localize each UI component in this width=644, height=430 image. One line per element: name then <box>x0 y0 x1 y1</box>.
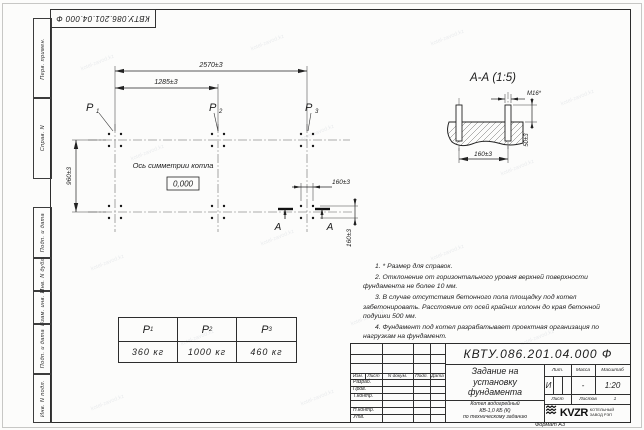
plan-axis-lines <box>88 124 352 232</box>
company-logo: KVZR КОТЕЛЬНЫЙ ЗАВОД РЭП <box>546 405 628 421</box>
note-4: 4. Фундамент под котел разрабатывает про… <box>363 323 615 342</box>
format-label: Формат А3 <box>490 422 610 428</box>
dim-bolt-height-label: 50±3 <box>524 133 530 147</box>
title-block-doc-number: КВТУ.086.201.04.000 Ф <box>446 344 630 364</box>
load-point-p2-label: P <box>209 102 217 114</box>
document-subtitle-line: Котел водогрейный <box>470 401 519 408</box>
p2-index: 2 <box>209 327 212 333</box>
tb-line <box>562 376 563 394</box>
role-prov: Пров. <box>351 386 382 393</box>
document-subtitle-line: по техническому заданию <box>463 414 527 421</box>
section-extension-lines <box>459 94 537 163</box>
sheets-value: 1 <box>606 394 624 404</box>
load-table-header-p2: P2 <box>178 318 237 342</box>
plan-small-dim-arrows <box>294 186 357 226</box>
dim-total-width-label: 2570±3 <box>198 62 222 69</box>
lit-value: И <box>544 376 553 394</box>
load-point-p3-sub: 3 <box>315 109 319 115</box>
load-table-header-p3: P3 <box>237 318 296 342</box>
section-letter-left: А <box>274 222 282 233</box>
note-2: 2. Отклонение от горизонтального уровня … <box>363 273 615 292</box>
plan-dimension-lines <box>76 71 355 226</box>
role-utv: Утв. <box>351 414 382 421</box>
scale-header: Масштаб <box>595 364 630 376</box>
tb-line <box>413 344 414 422</box>
document-title-line: установку <box>473 377 517 388</box>
dim-bolt-spacing-x-label: 160±3 <box>332 179 350 186</box>
anchor-bolt-left <box>456 105 462 141</box>
scale-value: 1:20 <box>595 376 630 394</box>
document-title-line: фундамента <box>468 387 522 398</box>
technical-notes: 1. * Размер для справок. 2. Отклонение о… <box>363 262 615 343</box>
document-title-line: Задание на <box>472 366 519 377</box>
p1-symbol: P <box>143 324 150 336</box>
document-title: Задание на установку фундамента <box>446 365 544 399</box>
load-point-p2-sub: 2 <box>218 109 223 115</box>
title-block: КВТУ.086.201.04.000 Ф Задание на установ… <box>350 343 631 423</box>
note-3: 3. В случае отсутствия бетонного пола пл… <box>363 293 615 322</box>
tb-line <box>430 344 431 422</box>
plan-view: 2570±3 1285±3 960±3 160±3 160±3 P 1 P 2 … <box>66 62 358 247</box>
col-header-data: Дата <box>430 373 445 379</box>
role-tkontr: Т.контр. <box>351 393 382 400</box>
section-view-title: А-А (1:5) <box>469 72 516 84</box>
col-header-ndoc: N докум. <box>382 373 413 379</box>
tb-line <box>382 344 383 422</box>
mass-value: - <box>571 376 595 394</box>
document-subtitle-line: КВ-1,0 КБ (К) <box>479 408 510 415</box>
load-values-table: P1 P2 P3 360 кг 1000 кг 460 кг <box>118 317 297 363</box>
p3-symbol: P <box>261 324 268 336</box>
dim-bolt-spacing-y-label: 160±3 <box>346 229 353 247</box>
load-point-leaders <box>99 113 311 131</box>
load-point-p1-label: P <box>86 102 94 114</box>
drawing-sheet: kotel-zavod.kz kotel-zavod.kz kotel-zavo… <box>0 0 644 430</box>
note-1: 1. * Размер для справок. <box>363 262 615 272</box>
role-razrab: Разраб. <box>351 379 382 386</box>
load-table-header-p1: P1 <box>119 318 178 342</box>
tb-line <box>553 376 554 394</box>
boiler-symmetry-axis-label: Ось симметрии котла <box>133 161 214 170</box>
document-subtitle: Котел водогрейный КВ-1,0 КБ (К) по техни… <box>446 401 544 421</box>
dim-depth-label: 960±3 <box>66 167 73 185</box>
load-point-p1-sub: 1 <box>96 109 99 115</box>
load-table-value-p2: 1000 кг <box>178 342 237 362</box>
section-view-a-a: А-А (1:5) <box>430 72 554 163</box>
sheet-label: Лист <box>544 394 571 404</box>
anchor-bolt-marks <box>108 133 314 219</box>
section-dim-arrows <box>498 98 534 129</box>
logo-text: KVZR <box>560 407 588 419</box>
load-point-p3-label: P <box>305 102 313 114</box>
p2-symbol: P <box>202 324 209 336</box>
load-table-value-p1: 360 кг <box>119 342 178 362</box>
role-empty <box>351 400 382 407</box>
anchor-bolt-right <box>505 105 511 141</box>
level-mark-value: 0,000 <box>173 180 194 189</box>
col-header-podp: Подп. <box>413 373 430 379</box>
logo-caption: КОТЕЛЬНЫЙ ЗАВОД РЭП <box>590 408 614 417</box>
dim-section-spacing-label: 160±3 <box>474 151 492 158</box>
signature-roles: Разраб. Пров. Т.контр. Н.контр. Утв. <box>351 379 382 421</box>
mass-header: Масса <box>571 364 595 376</box>
dim-half-width-label: 1285±3 <box>154 79 177 86</box>
logo-caption-line: ЗАВОД РЭП <box>590 413 614 418</box>
bolt-thread-callout: М16* <box>527 91 542 97</box>
lit-header: Лит. <box>544 364 571 376</box>
p1-index: 1 <box>150 327 153 333</box>
load-table-value-p3: 460 кг <box>237 342 296 362</box>
kvzr-logo-icon <box>546 405 557 416</box>
p3-index: 3 <box>269 327 272 333</box>
sheets-label: Листов <box>573 394 603 404</box>
role-nkontr: Н.контр. <box>351 407 382 414</box>
section-letter-right: А <box>326 222 334 233</box>
